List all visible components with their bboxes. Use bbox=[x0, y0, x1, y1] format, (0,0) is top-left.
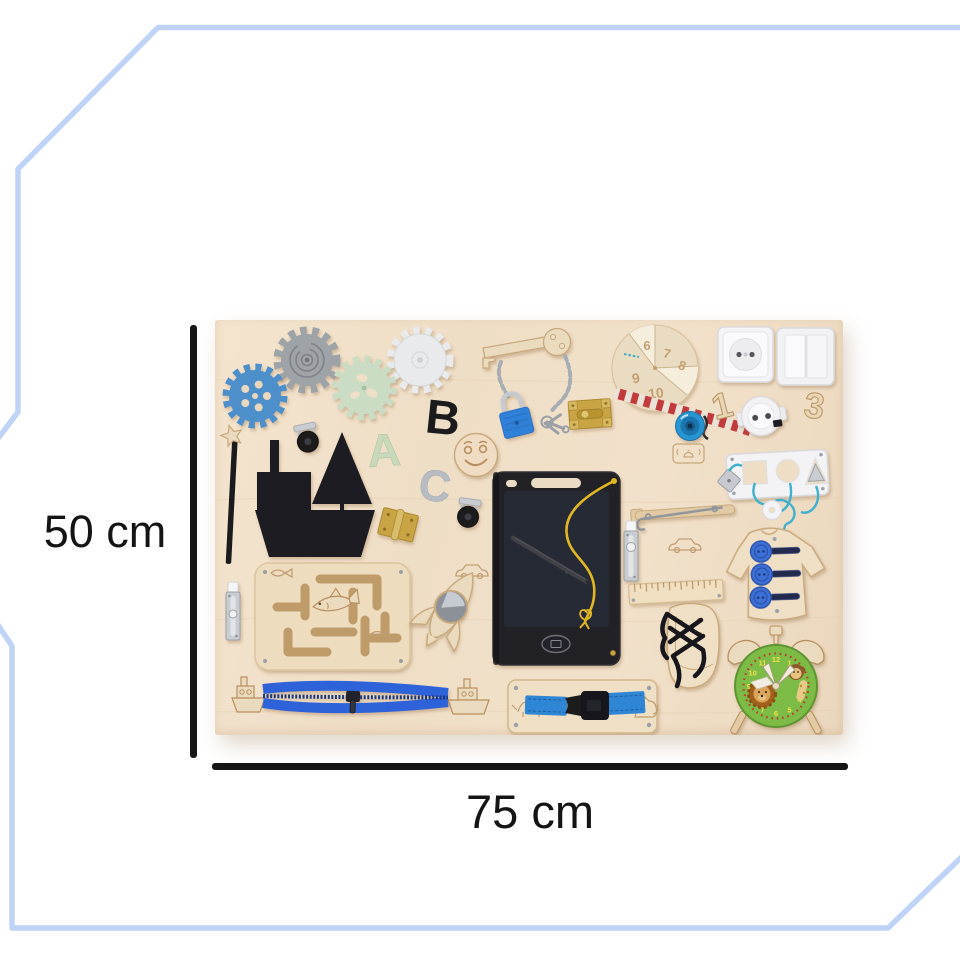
brass-slide-latch-icon bbox=[568, 399, 612, 430]
padlock-icon bbox=[495, 390, 535, 439]
star-wand-icon bbox=[219, 423, 244, 564]
caster-wheel-icon bbox=[456, 498, 482, 529]
height-dimension-line bbox=[190, 325, 197, 758]
silver-slide-bolt-icon bbox=[226, 582, 240, 640]
shape-sorter-plate-icon bbox=[726, 449, 829, 499]
width-dimension-label: 75 cm bbox=[425, 784, 635, 839]
zipper-icon bbox=[263, 686, 448, 713]
tablet-button bbox=[542, 636, 570, 653]
cord-disc-icon bbox=[763, 501, 782, 520]
tablet-screen bbox=[504, 491, 609, 627]
brass-hinge-icon bbox=[377, 505, 419, 544]
chain-icon bbox=[499, 356, 570, 412]
silver-slide-bolt-icon bbox=[624, 521, 638, 581]
gear-green-icon bbox=[336, 360, 393, 417]
boat-engraved-icon bbox=[448, 679, 489, 714]
shirt-buttons-icon bbox=[725, 526, 826, 621]
product-image: 50 cm 75 cm bbox=[0, 0, 960, 960]
letter-a: A bbox=[366, 423, 403, 477]
strap-left bbox=[525, 695, 568, 715]
svg-text:6: 6 bbox=[774, 709, 778, 718]
svg-text:10: 10 bbox=[748, 669, 756, 678]
strap-right bbox=[606, 691, 645, 715]
height-dimension-label: 50 cm bbox=[28, 506, 182, 558]
screw bbox=[610, 650, 615, 655]
shark-maze-icon bbox=[255, 563, 410, 670]
svg-text:5: 5 bbox=[787, 705, 791, 714]
gear-blue-icon bbox=[227, 368, 284, 425]
lacing-shoe-icon bbox=[662, 603, 719, 688]
boat-engraved-icon bbox=[232, 677, 265, 712]
ship-silhouette-icon bbox=[255, 432, 375, 557]
gear-gray-icon bbox=[278, 331, 337, 390]
svg-text:6: 6 bbox=[643, 338, 650, 353]
ruler-icon bbox=[629, 580, 724, 605]
width-dimension-line bbox=[212, 763, 848, 770]
number-three: 3 bbox=[802, 384, 828, 427]
letter-c: C bbox=[416, 460, 454, 513]
hook-latch-icon bbox=[631, 503, 736, 531]
alarm-clock-icon: 12 1 2 3 4 5 6 7 8 9 10 11 bbox=[724, 626, 828, 735]
power-socket-icon bbox=[718, 327, 773, 382]
light-switch-icon bbox=[777, 328, 834, 385]
letter-b: B bbox=[423, 390, 463, 446]
buckle-plate-icon bbox=[508, 680, 658, 733]
caster-wheel-icon bbox=[293, 422, 320, 454]
bell-engraving bbox=[673, 444, 704, 463]
busy-board: A B C bbox=[215, 320, 843, 735]
svg-text:12: 12 bbox=[772, 655, 780, 664]
lcd-tablet-icon bbox=[493, 472, 620, 665]
bell-icon bbox=[676, 412, 705, 441]
car-engraving bbox=[669, 539, 701, 553]
smiley-face-icon bbox=[455, 434, 498, 477]
keys-bunch-icon bbox=[541, 414, 569, 434]
gear-white-icon bbox=[391, 331, 450, 390]
wooden-key-icon bbox=[483, 329, 571, 369]
